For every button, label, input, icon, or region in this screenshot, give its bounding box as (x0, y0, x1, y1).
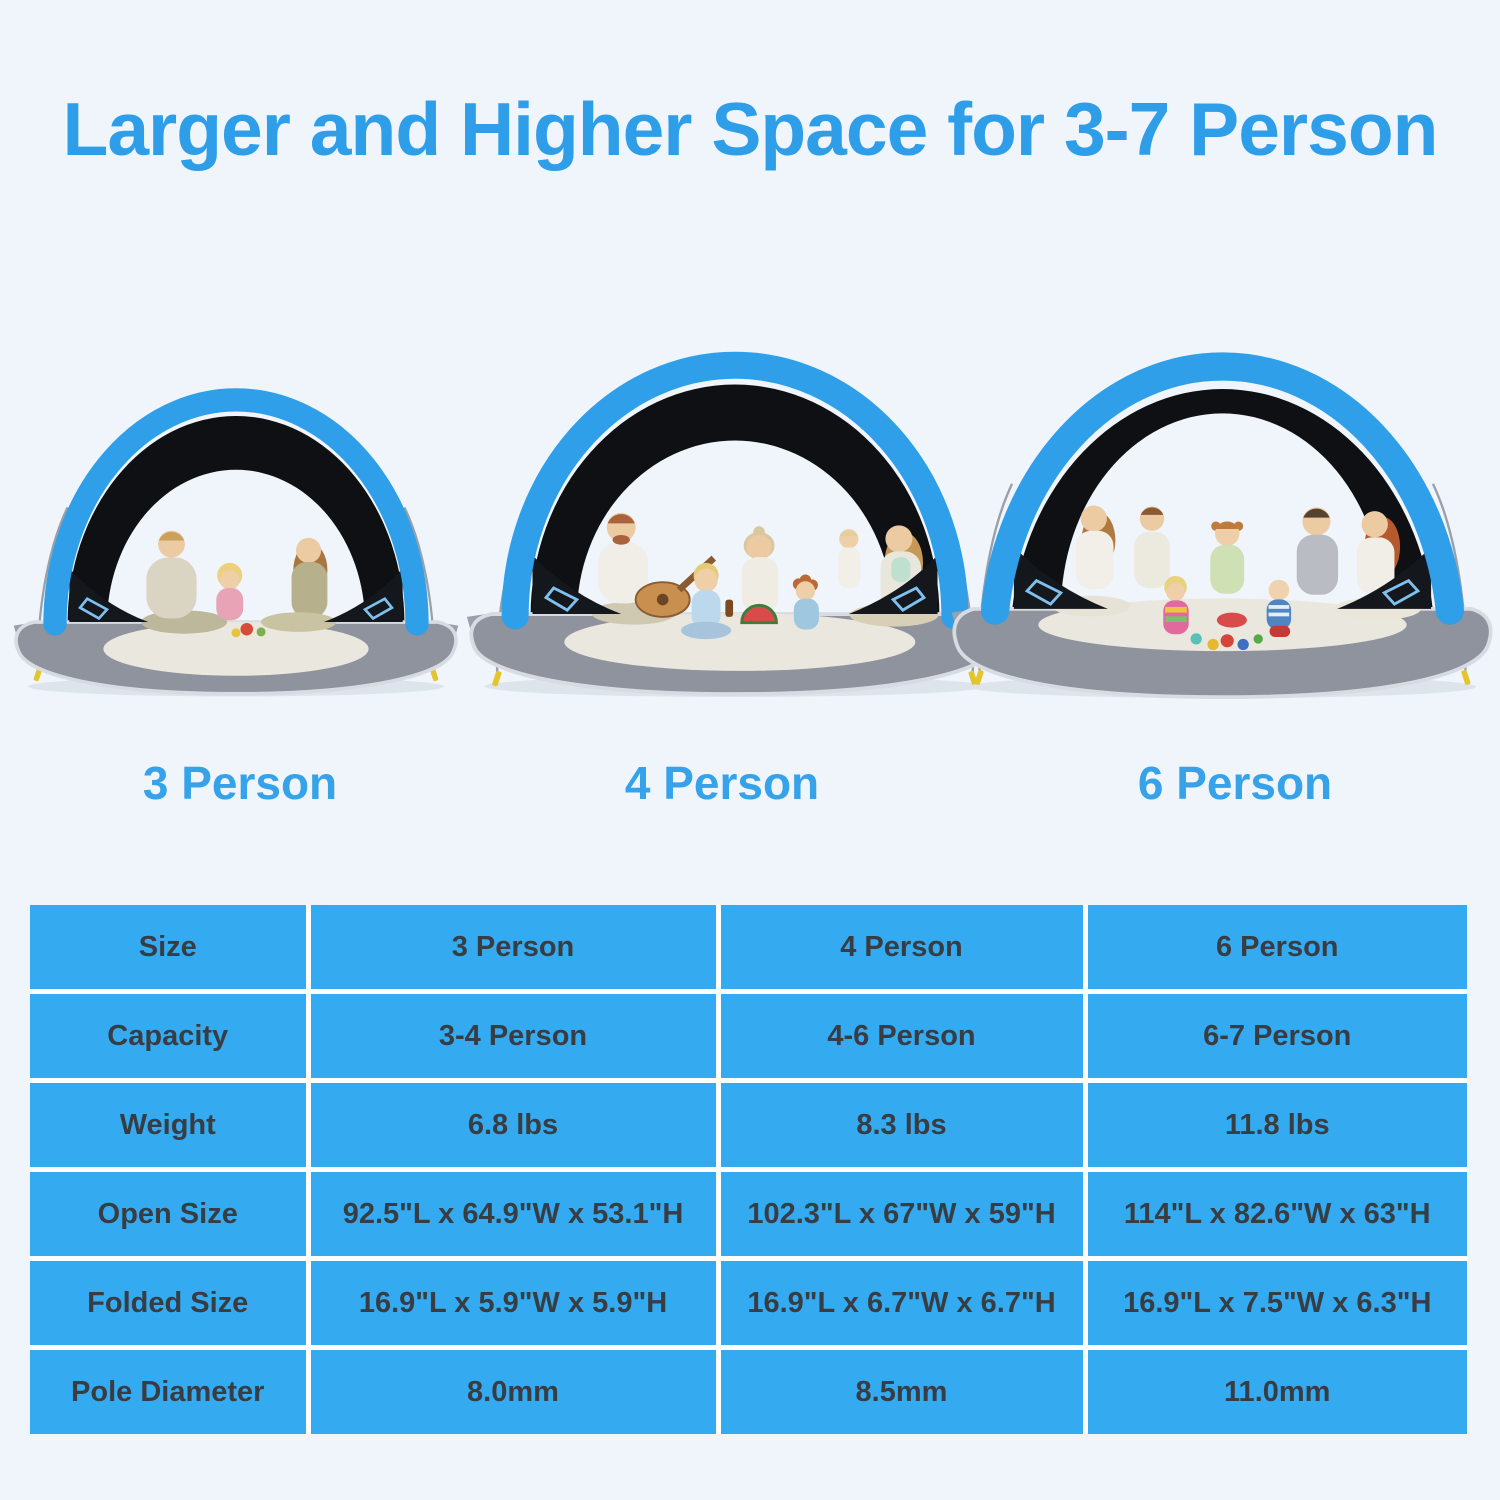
tent-3person-illustration (12, 364, 460, 705)
spec-value: 16.9"L x 7.5"W x 6.3"H (1085, 1259, 1467, 1348)
spec-value: 4-6 Person (718, 992, 1085, 1081)
spec-value: 11.0mm (1085, 1348, 1467, 1435)
tent-label-6person: 6 Person (1138, 756, 1332, 810)
tent-4person-illustration (465, 341, 1005, 705)
page-title: Larger and Higher Space for 3-7 Person (0, 86, 1500, 172)
spec-value: 6-7 Person (1085, 992, 1467, 1081)
tent-6person-illustration (950, 310, 1495, 705)
spec-label: Pole Diameter (30, 1348, 308, 1435)
spec-value: 102.3"L x 67"W x 59"H (718, 1170, 1085, 1259)
spec-value: 92.5"L x 64.9"W x 53.1"H (308, 1170, 718, 1259)
table-row-size: Size 3 Person 4 Person 6 Person (30, 905, 1467, 992)
spec-label: Open Size (30, 1170, 308, 1259)
spec-value: 16.9"L x 6.7"W x 6.7"H (718, 1259, 1085, 1348)
spec-value: 11.8 lbs (1085, 1081, 1467, 1170)
table-row-pole-diameter: Pole Diameter 8.0mm 8.5mm 11.0mm (30, 1348, 1467, 1435)
table-row-weight: Weight 6.8 lbs 8.3 lbs 11.8 lbs (30, 1081, 1467, 1170)
spec-value: 4 Person (718, 905, 1085, 992)
tent-6person-drawing (950, 310, 1495, 700)
spec-value: 114"L x 82.6"W x 63"H (1085, 1170, 1467, 1259)
spec-value: 16.9"L x 5.9"W x 5.9"H (308, 1259, 718, 1348)
spec-value: 3-4 Person (308, 992, 718, 1081)
table-row-folded-size: Folded Size 16.9"L x 5.9"W x 5.9"H 16.9"… (30, 1259, 1467, 1348)
spec-value: 8.3 lbs (718, 1081, 1085, 1170)
people-illustration (1038, 505, 1420, 651)
spec-label: Folded Size (30, 1259, 308, 1348)
spec-value: 8.5mm (718, 1348, 1085, 1435)
tent-4person-drawing (465, 341, 1005, 700)
product-infographic: Larger and Higher Space for 3-7 Person (0, 0, 1500, 1500)
spec-table: Size 3 Person 4 Person 6 Person Capacity… (30, 905, 1467, 1434)
spec-value: 6 Person (1085, 905, 1467, 992)
spec-value: 6.8 lbs (308, 1081, 718, 1170)
spec-value: 3 Person (308, 905, 718, 992)
spec-value: 8.0mm (308, 1348, 718, 1435)
spec-label: Capacity (30, 992, 308, 1081)
stake-icon (974, 669, 984, 685)
table-row-capacity: Capacity 3-4 Person 4-6 Person 6-7 Perso… (30, 992, 1467, 1081)
tent-label-3person: 3 Person (143, 756, 337, 810)
tent-3person-drawing (12, 364, 460, 700)
spec-label: Size (30, 905, 308, 992)
stake-icon (1461, 669, 1471, 685)
table-row-open-size: Open Size 92.5"L x 64.9"W x 53.1"H 102.3… (30, 1170, 1467, 1259)
tent-label-4person: 4 Person (625, 756, 819, 810)
spec-label: Weight (30, 1081, 308, 1170)
